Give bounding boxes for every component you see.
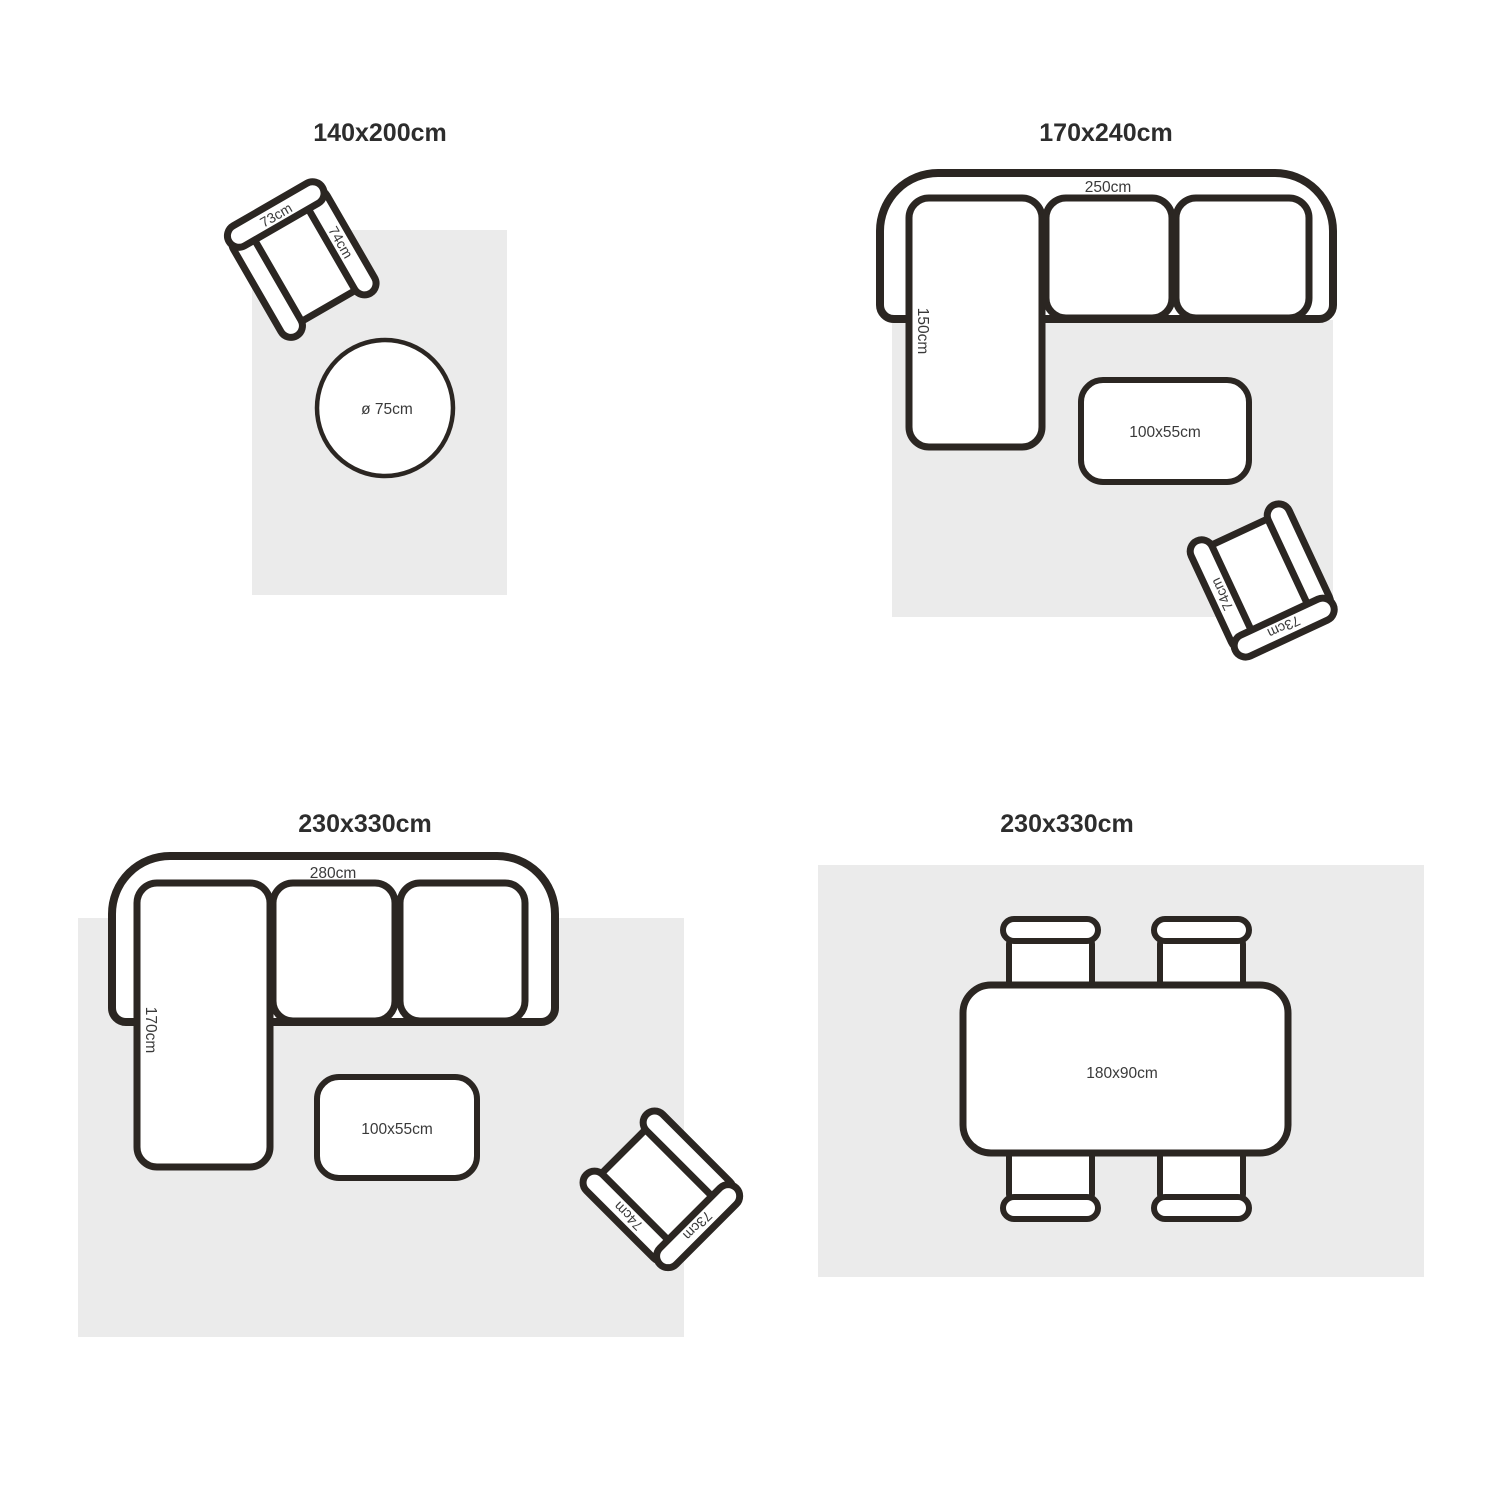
sofa-right-seat: [1176, 198, 1309, 318]
quadrant-title: 230x330cm: [1000, 810, 1133, 838]
round-table-label: ø 75cm: [361, 401, 413, 418]
dining-chair-top-right: [1154, 919, 1249, 991]
dining-table-label: 180x90cm: [1086, 1065, 1158, 1082]
quadrant-title: 170x240cm: [1039, 119, 1172, 147]
quadrant-170x240: 170x240cm 250cm 150cm 100x55cm: [880, 119, 1338, 661]
dining-chair-top-left: [1003, 919, 1098, 991]
sofa-middle-seat: [1046, 198, 1172, 318]
dining-chair-bottom-left: [1003, 1147, 1098, 1219]
quadrant-140x200: 140x200cm ø 75cm: [223, 119, 507, 595]
sofa-width-label: 280cm: [310, 865, 357, 882]
sofa-chaise-label: 150cm: [914, 308, 931, 355]
quadrant-230x330-living: 230x330cm 280cm 170cm 100x55cm: [78, 810, 744, 1337]
coffee-table-label: 100x55cm: [361, 1121, 433, 1138]
dining-chair-bottom-right: [1154, 1147, 1249, 1219]
sofa-width-label: 250cm: [1085, 179, 1132, 196]
sofa-middle-seat: [273, 883, 395, 1021]
coffee-table-label: 100x55cm: [1129, 424, 1201, 441]
sofa-chaise-label: 170cm: [142, 1007, 159, 1054]
quadrant-title: 140x200cm: [313, 119, 446, 147]
sofa-right-seat: [400, 883, 525, 1021]
rug-size-guide: 73cm 74cm 140x200cm ø 75cm 170x240cm 250…: [0, 0, 1500, 1500]
quadrant-title: 230x330cm: [298, 810, 431, 838]
rug-size-diagram: 73cm 74cm 140x200cm ø 75cm 170x240cm 250…: [0, 0, 1500, 1500]
quadrant-230x330-dining: 230x330cm 180x90cm: [818, 810, 1424, 1277]
